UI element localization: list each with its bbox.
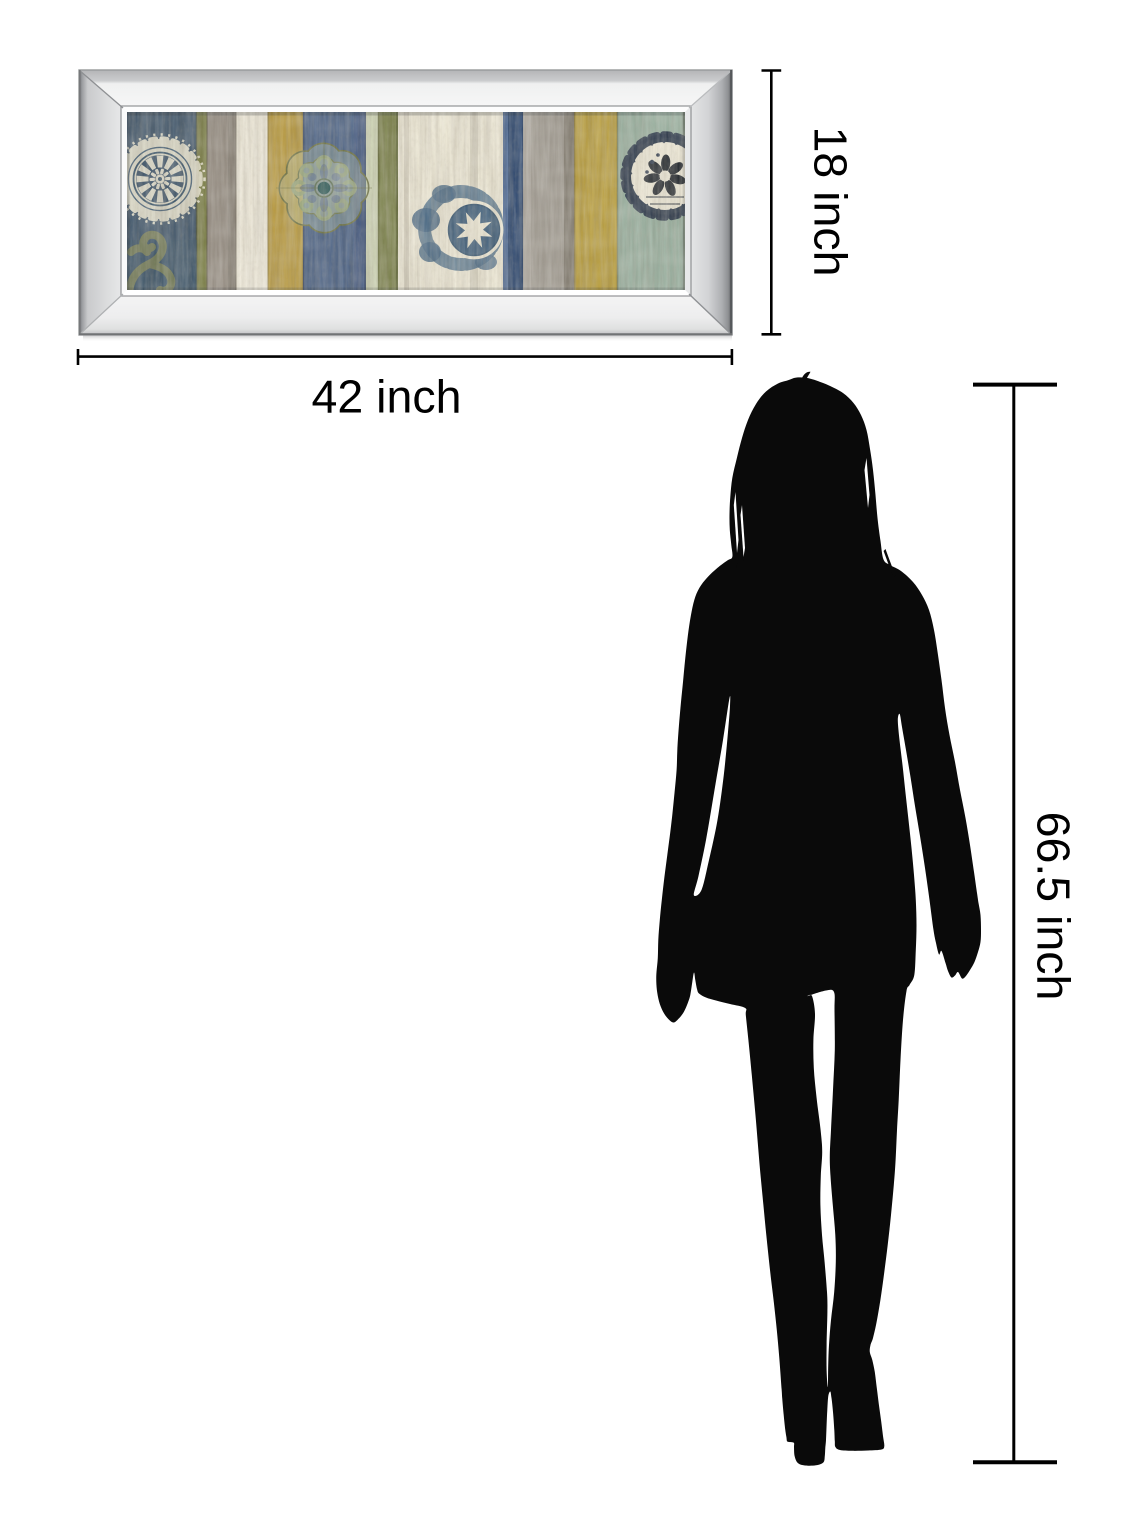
svg-text:18 inch: 18 inch (805, 127, 857, 277)
svg-text:66.5 inch: 66.5 inch (1028, 812, 1080, 1001)
svg-text:42 inch: 42 inch (312, 371, 462, 423)
